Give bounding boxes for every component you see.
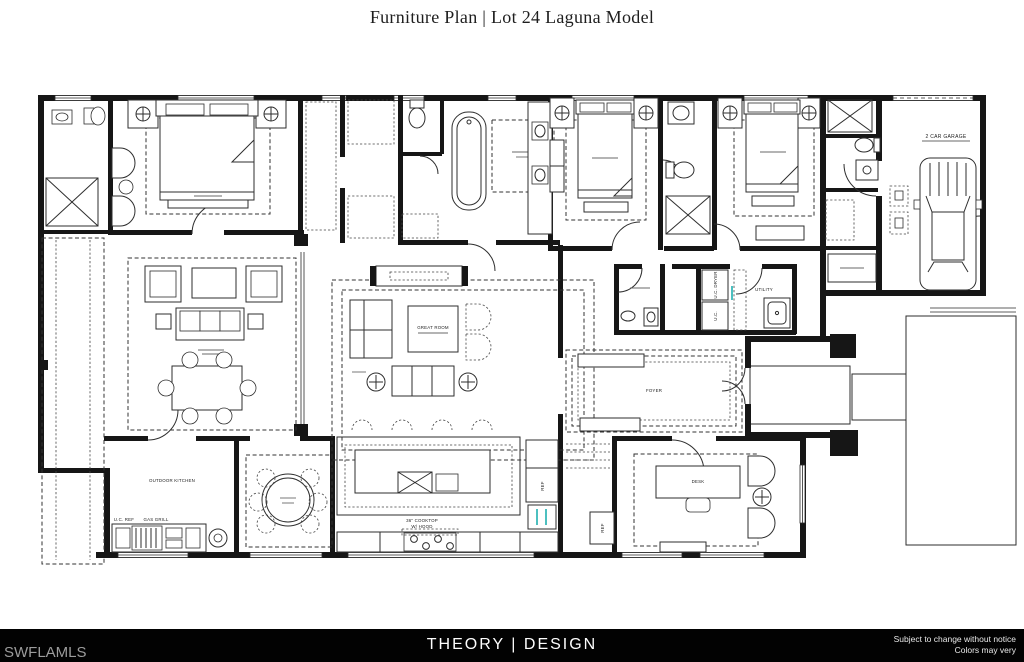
barstool [352,420,372,430]
barstool [392,420,412,430]
armchair-icon [112,196,135,226]
dining-chair [216,352,232,368]
pillow [580,103,604,112]
swivel-chair [466,304,491,330]
bed-queen [746,114,798,192]
toilet-tank [666,162,674,178]
master-closet [38,238,108,564]
barstool [472,420,492,430]
ref-label: REF [540,481,545,490]
room-breakfast [246,455,332,547]
room-great-room: GREAT ROOM [332,266,594,460]
pillow [210,104,248,115]
entry-court-pavers [750,366,850,424]
dining-chair [182,408,198,424]
room-powder [621,288,658,326]
barstool [432,420,452,430]
console-table [580,418,640,431]
sink-icon [56,113,68,121]
utility-label: UTILITY [755,287,773,292]
counter [734,270,746,330]
closet [348,100,394,144]
disclaimer-line-2: Colors may very [894,645,1016,656]
car-icon [914,158,982,290]
paver-areas [750,308,1016,545]
dining-chair [158,380,174,396]
room-bedroom-3 [718,98,820,240]
dining-chair [240,380,256,396]
cooktop-label-2: W/ HOOD [411,524,432,529]
desk-chair [686,498,710,512]
uc-dryer-label: U.C. DRYER [713,271,718,298]
room-master-bath-left [46,107,105,226]
dining-chair [216,408,232,424]
closet [348,196,394,238]
bench [584,202,628,212]
bench [660,542,706,552]
highlighted-appliance [528,505,556,529]
room-garage: 2 CAR GARAGE [890,134,982,290]
room-pantry: REF [566,444,614,544]
armchair-icon [112,148,135,178]
side-table [119,180,133,194]
media-wall [376,266,462,286]
desk-label: DESK [692,479,705,484]
bed-king [160,116,254,200]
bed-bench [168,200,248,208]
brand-logo: THEORY | DESIGN [0,636,1024,654]
closet-rod [306,102,336,230]
uc-ref-label: U.C. REF [114,517,135,522]
mls-watermark: SWFLAMLS [4,644,87,661]
pillow [774,103,797,112]
garage-label: 2 CAR GARAGE [925,134,966,140]
mirror [914,200,920,209]
toilet-icon [621,311,635,321]
chair [301,515,319,533]
room-outdoor-kitchen: OUTDOOR KITCHEN U.C. REF GAS GRILL [112,478,227,552]
walkway-pavers [852,374,906,420]
disclaimer-text: Subject to change without notice Colors … [894,634,1016,655]
armchair-icon [748,508,775,538]
toilet-icon [91,107,105,125]
footer-bar: THEORY | DESIGN Subject to change withou… [0,629,1024,662]
pillow [607,103,631,112]
door-swings [148,156,980,472]
closet [826,200,854,240]
toilet-tank [410,100,424,108]
mirror [976,200,982,209]
bench [752,196,794,206]
ref-label: REF [600,523,605,532]
room-lanai-living [128,258,296,430]
round-table [262,474,314,526]
toilet-icon [409,108,425,128]
room-foyer: FOYER [566,350,742,432]
pillow [748,103,771,112]
armchair-icon [748,456,775,486]
entry-column [830,430,858,456]
side-table [156,314,171,329]
pillow [166,104,204,115]
disclaimer-line-1: Subject to change without notice [894,634,1016,645]
garage-door [893,96,973,101]
gas-grill-label: GAS GRILL [144,517,169,522]
room-master-bedroom [112,100,286,226]
side-table [248,314,263,329]
sectional-sofa [350,300,392,358]
great-room-label: GREAT ROOM [417,325,449,330]
linen-closet [402,214,438,238]
entry-column [830,334,856,358]
cooktop-label-1: 36" COOKTOP [406,518,438,523]
room-kitchen: 36" COOKTOP W/ HOOD REF [337,420,558,552]
vanity [644,308,658,326]
toilet-tank [874,138,880,152]
dresser [756,226,804,240]
outdoor-kitchen-label: OUTDOOR KITCHEN [149,478,195,483]
room-study: DESK [634,454,775,552]
foyer-label: FOYER [646,388,662,393]
uc-washer-label: U.C. [713,311,718,321]
chair [301,469,319,487]
room-jack-and-jill-bath [666,102,710,234]
swivel-chair [466,334,491,360]
dining-table [172,366,242,410]
toilet-icon [674,162,694,178]
vanity [668,102,694,124]
sofa [392,366,454,396]
dining-chair [182,352,198,368]
driveway-pavers [906,316,1016,545]
coffee-table [192,268,236,298]
room-bedroom-2 [550,98,658,220]
listing-image: Furniture Plan | Lot 24 Laguna Model [0,0,1024,662]
toilet-icon [855,138,873,152]
console-table [578,354,644,367]
room-utility: U.C. DRYER U.C. UTILITY [702,270,790,330]
floor-plan: OUTDOOR KITCHEN U.C. REF GAS GRILL [0,0,1024,662]
vanity [856,160,878,180]
